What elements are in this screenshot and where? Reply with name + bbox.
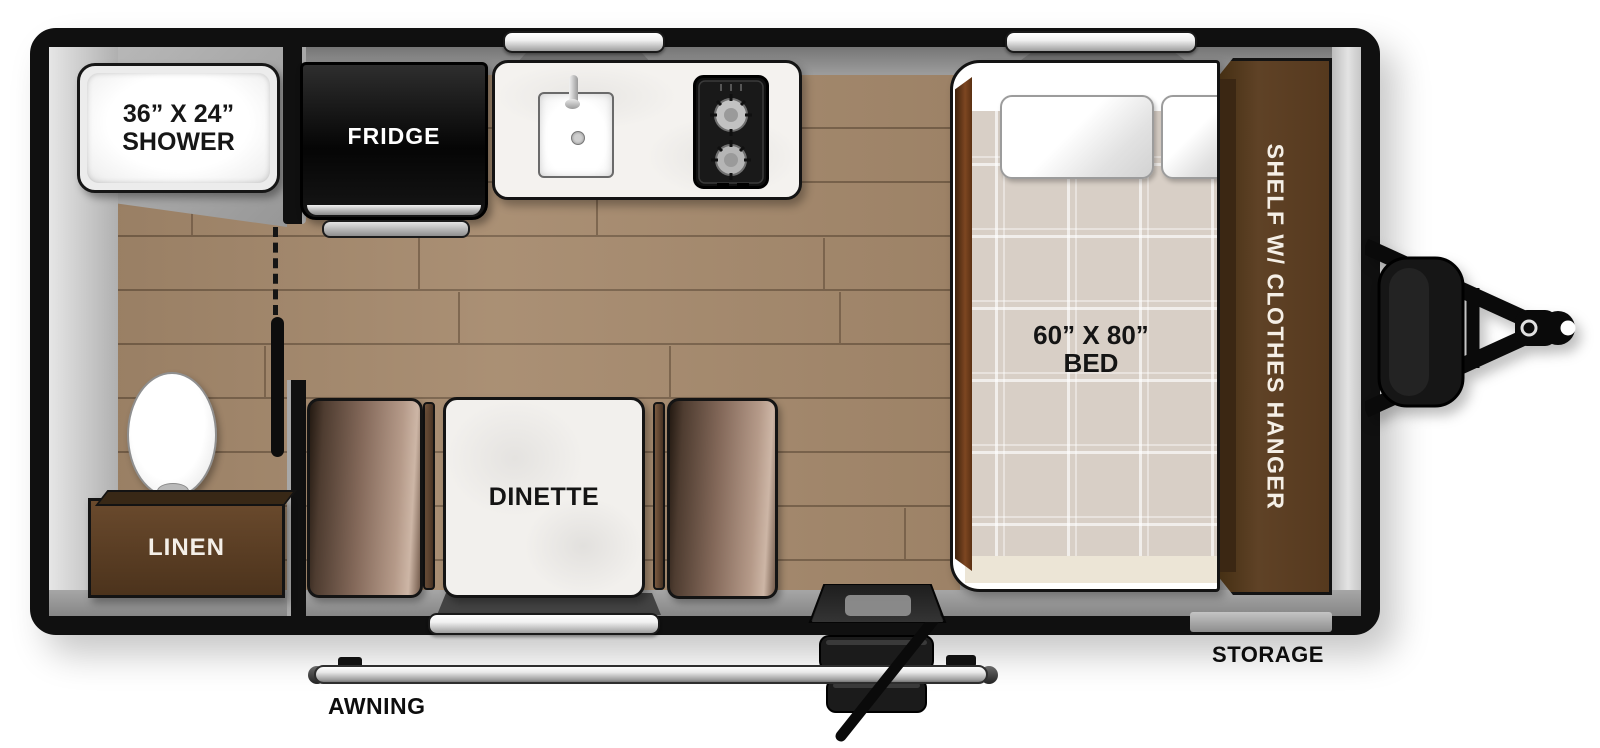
bed: 60” X 80” BED	[950, 60, 1220, 592]
storage-door	[1190, 612, 1332, 632]
dinette-bench-left	[307, 398, 423, 598]
shower-pan: 36” X 24” SHOWER	[77, 63, 280, 193]
rv-floorplan: 36” X 24” SHOWER LINEN FRIDGE	[0, 0, 1600, 741]
floor-plank-seam	[669, 346, 671, 397]
floor-plank-seam	[839, 292, 841, 343]
clothes-shelf: SHELF W/ CLOTHES HANGER	[1217, 58, 1332, 595]
bed-label: 60” X 80” BED	[965, 321, 1217, 377]
window	[428, 613, 660, 635]
shelf-label: SHELF W/ CLOTHES HANGER	[1261, 143, 1288, 510]
window	[1005, 31, 1197, 53]
bed-size: 60” X 80”	[965, 321, 1217, 349]
pillow	[1000, 95, 1154, 179]
dinette-bench-right	[667, 398, 778, 599]
dinette-label: DINETTE	[489, 483, 599, 512]
sink-drain-icon	[571, 131, 585, 145]
floor-plank-seam	[418, 238, 420, 289]
floor-plank-seam	[458, 292, 460, 343]
dinette-table: DINETTE	[443, 397, 645, 598]
faucet-head-icon	[565, 99, 580, 109]
floor-plank-seam	[904, 508, 906, 559]
floor-plank-seam	[264, 346, 266, 397]
shower-size: 36” X 24”	[122, 100, 235, 128]
linen-label: LINEN	[148, 534, 225, 562]
window	[503, 31, 665, 53]
trailer-body: 36” X 24” SHOWER LINEN FRIDGE	[30, 28, 1380, 635]
bathroom-door-panel	[271, 317, 284, 457]
entry-step-pad	[845, 595, 911, 616]
subfloor-right-strip	[1332, 47, 1361, 616]
bed-foot-strip	[965, 556, 1217, 583]
bed-name: BED	[965, 349, 1217, 377]
fridge-label: FRIDGE	[348, 123, 441, 150]
pillow	[1161, 95, 1220, 179]
bench-backrest	[653, 402, 665, 590]
trailer-hitch	[1365, 222, 1585, 442]
fridge-tray	[322, 220, 470, 238]
toilet	[127, 372, 217, 498]
floor-plank-seam	[823, 238, 825, 289]
shower-label: 36” X 24” SHOWER	[122, 100, 235, 156]
stove-cooktop	[693, 75, 769, 189]
shelf-side-facet	[1220, 79, 1236, 572]
storage-label: STORAGE	[1202, 642, 1334, 668]
shower-name: SHOWER	[122, 128, 235, 156]
bench-backrest	[423, 402, 435, 590]
linen-cabinet: LINEN	[88, 498, 285, 598]
awning-label: AWNING	[328, 693, 426, 720]
door-swing-dashed-line	[273, 227, 278, 315]
fridge: FRIDGE	[300, 62, 488, 220]
